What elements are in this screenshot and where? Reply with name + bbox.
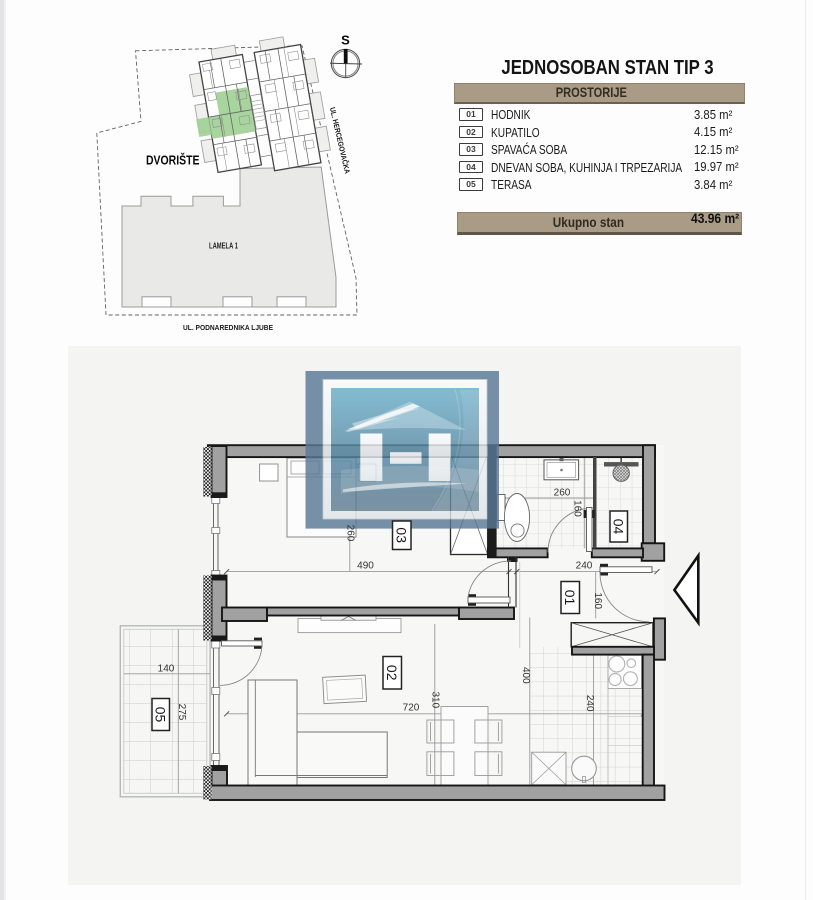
svg-text:04: 04: [611, 519, 627, 535]
svg-text:720: 720: [403, 703, 420, 714]
svg-text:240: 240: [584, 695, 595, 712]
svg-text:240: 240: [576, 560, 593, 571]
svg-text:160: 160: [572, 500, 583, 517]
svg-text:260: 260: [344, 525, 355, 542]
svg-text:S: S: [341, 33, 350, 48]
svg-text:UL. HERCEGOVAČKA: UL. HERCEGOVAČKA: [328, 106, 352, 175]
svg-text:140: 140: [158, 663, 175, 674]
svg-text:275: 275: [176, 704, 187, 721]
svg-text:05: 05: [153, 707, 169, 723]
svg-text:490: 490: [357, 561, 374, 572]
svg-text:260: 260: [554, 487, 571, 498]
svg-text:01: 01: [562, 590, 578, 606]
svg-text:400: 400: [520, 667, 531, 684]
svg-text:02: 02: [384, 665, 400, 681]
svg-text:03: 03: [394, 527, 410, 543]
svg-text:310: 310: [429, 691, 440, 708]
svg-text:UL. PODNAREDNIKA LJUBE: UL. PODNAREDNIKA LJUBE: [183, 323, 273, 332]
svg-text:160: 160: [592, 592, 603, 609]
svg-text:DVORIŠTE: DVORIŠTE: [146, 153, 200, 168]
svg-text:LAMELA 1: LAMELA 1: [209, 242, 238, 251]
